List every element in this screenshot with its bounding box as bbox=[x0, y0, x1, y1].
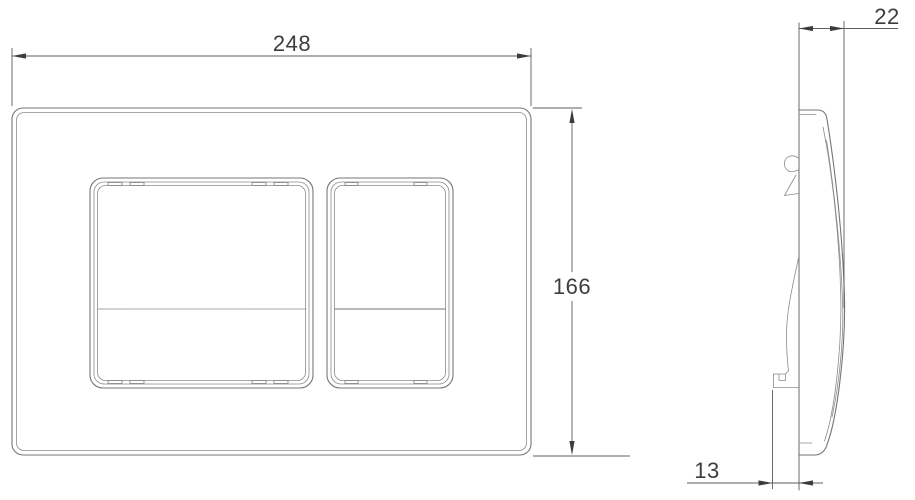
dimension-depth: 22 bbox=[799, 4, 900, 308]
dim-offset-arrow-left bbox=[759, 480, 773, 485]
dim-height-arrow-top bbox=[569, 109, 574, 123]
dim-width-label: 248 bbox=[273, 31, 311, 56]
side-top-clip bbox=[784, 156, 798, 196]
dimension-bracket-offset: 13 bbox=[687, 390, 823, 489]
dim-width-arrow-right bbox=[517, 53, 531, 58]
dim-height-label: 166 bbox=[553, 274, 591, 299]
dim-offset-arrow-right bbox=[799, 480, 813, 485]
technical-drawing-flush-plate: 248 166 bbox=[0, 0, 915, 500]
dimension-height: 166 bbox=[533, 108, 630, 456]
flush-button-large-mid bbox=[94, 182, 309, 384]
dim-depth-label: 22 bbox=[874, 4, 899, 29]
drawing-svg: 248 166 bbox=[0, 0, 915, 500]
flush-button-small-mid bbox=[331, 182, 449, 384]
side-frame-curve bbox=[787, 258, 799, 371]
flush-button-large bbox=[90, 178, 313, 388]
flush-button-small-tabs bbox=[345, 183, 427, 384]
front-view bbox=[12, 108, 531, 455]
side-plate-profile bbox=[799, 110, 845, 455]
dim-offset-label: 13 bbox=[694, 458, 719, 483]
flush-button-small-inner bbox=[335, 186, 446, 381]
side-bottom-bracket bbox=[774, 371, 799, 388]
dim-depth-arrow-right bbox=[830, 26, 844, 31]
dim-depth-arrow-left bbox=[799, 26, 813, 31]
dim-height-arrow-bottom bbox=[569, 441, 574, 455]
flush-button-small-outer bbox=[327, 178, 453, 388]
plate-outline-inner bbox=[17, 113, 527, 451]
dim-width-arrow-left bbox=[12, 53, 26, 58]
flush-button-large-inner bbox=[98, 186, 306, 381]
dimension-width: 248 bbox=[12, 31, 531, 106]
flush-button-large-outer bbox=[90, 178, 313, 388]
flush-button-small bbox=[327, 178, 453, 388]
flush-button-large-tabs bbox=[108, 183, 288, 384]
side-view bbox=[774, 23, 845, 490]
